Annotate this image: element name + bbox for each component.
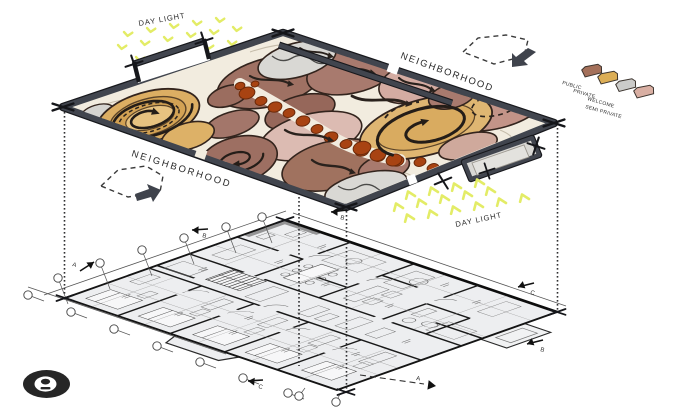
svg-text:A: A (416, 376, 421, 383)
